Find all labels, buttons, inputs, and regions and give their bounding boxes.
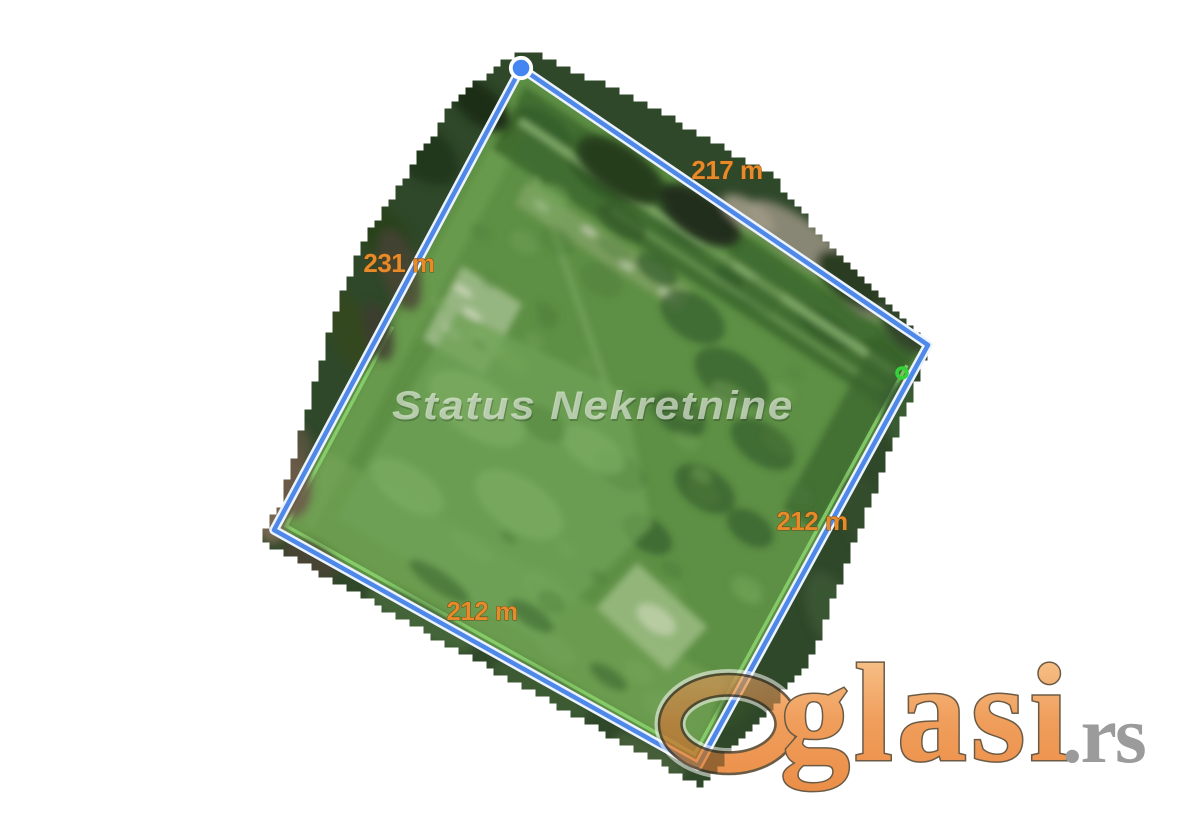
- svg-text:glasi: glasi: [780, 636, 1072, 791]
- svg-text:212 m: 212 m: [446, 596, 517, 626]
- svg-text:Status Nekretnine: Status Nekretnine: [392, 384, 794, 428]
- svg-text:.rs: .rs: [1062, 689, 1145, 780]
- svg-text:217 m: 217 m: [691, 155, 762, 185]
- svg-text:212 m: 212 m: [776, 506, 847, 536]
- svg-text:231 m: 231 m: [363, 248, 434, 278]
